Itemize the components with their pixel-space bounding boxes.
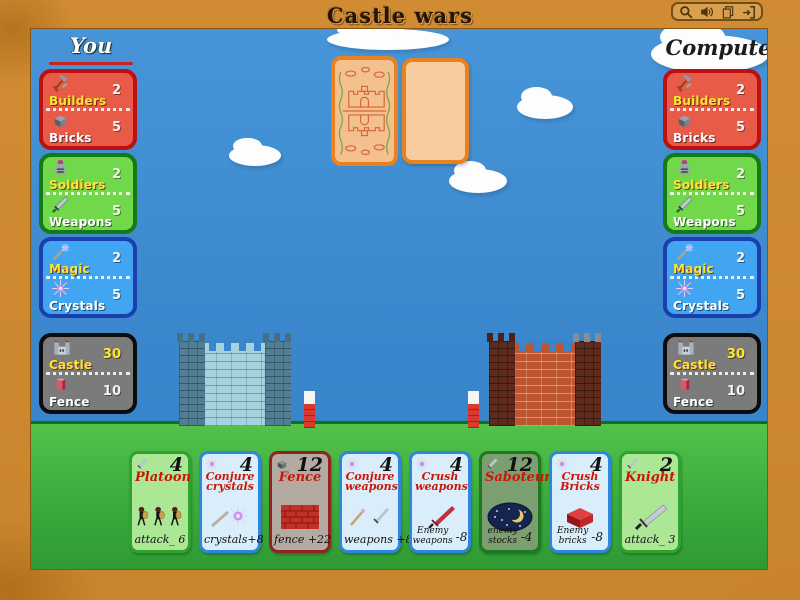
fence-brick-icon <box>675 375 694 394</box>
hand-card-knight[interactable]: 2 Knight attack_ 3 <box>619 451 681 553</box>
volume-icon[interactable] <box>700 5 714 19</box>
fence-value: 10 <box>727 384 745 399</box>
hand-card-fence[interactable]: 12 Fence fence +22 <box>269 451 331 553</box>
computer-castle-panel: Castle 30 Fence 10 <box>663 333 761 414</box>
magic-value: 2 <box>112 251 121 266</box>
crystal-icon <box>345 457 359 471</box>
hand-card-crush-weapons[interactable]: 4 Crush weapons Enemyweapons -8 <box>409 451 471 553</box>
brick-wall-art <box>272 500 328 534</box>
playfield: You Computer Builders 2 Bricks 5 <box>30 28 768 570</box>
crystals-value: 5 <box>112 288 121 303</box>
builders-value: 2 <box>736 83 745 98</box>
you-underline <box>49 62 133 65</box>
toolbar <box>671 2 763 21</box>
wand-icon <box>51 243 70 262</box>
crystals-label: Crystals <box>49 299 105 313</box>
computer-fence <box>468 391 479 428</box>
brick-icon <box>51 111 70 130</box>
soldiers-label: Soldiers <box>49 178 106 192</box>
brick-icon <box>675 111 694 130</box>
crystal-icon <box>205 457 219 471</box>
card-cost: 4 <box>240 454 253 476</box>
card-effect: fence +22 <box>274 533 326 546</box>
sword-icon <box>675 195 694 214</box>
you-soldiers-panel: Soldiers 2 Weapons 5 <box>39 153 137 234</box>
you-magic-panel: Magic 2 Crystals 5 <box>39 237 137 318</box>
card-effect: attack_ 3 <box>624 533 676 546</box>
soldiers-value: 2 <box>736 167 745 182</box>
card-effect: Enemyweapons -8 <box>414 527 466 546</box>
castle-value: 30 <box>103 347 121 362</box>
sword-icon <box>485 457 499 471</box>
weapons-value: 5 <box>736 204 745 219</box>
bricks-value: 5 <box>112 120 121 135</box>
crystal-icon <box>555 457 569 471</box>
platoon-soldiers-art <box>132 500 188 534</box>
card-cost: 4 <box>590 454 603 476</box>
cloud <box>229 145 281 166</box>
weapons-value: 5 <box>112 204 121 219</box>
builders-label: Builders <box>49 94 106 108</box>
fence-value: 10 <box>103 384 121 399</box>
you-label: You <box>41 33 141 58</box>
you-builders-panel: Builders 2 Bricks 5 <box>39 69 137 150</box>
hand-card-conjure-weapons[interactable]: 4 Conjure weapons weapons +8 <box>339 451 401 553</box>
card-effect: attack_ 6 <box>134 533 186 546</box>
weapons-label: Weapons <box>673 215 736 229</box>
helmet-icon <box>51 159 70 178</box>
castle-label: Castle <box>49 358 92 372</box>
cloud <box>517 95 573 119</box>
card-effect: weapons +8 <box>344 533 396 546</box>
helmet-icon <box>675 159 694 178</box>
castle-label: Castle <box>673 358 716 372</box>
builders-value: 2 <box>112 83 121 98</box>
computer-soldiers-panel: Soldiers 2 Weapons 5 <box>663 153 761 234</box>
soldiers-value: 2 <box>112 167 121 182</box>
card-effect: enemystocks -4 <box>484 527 536 546</box>
wand-sword-art <box>342 500 398 534</box>
bricks-value: 5 <box>736 120 745 135</box>
builders-icon <box>51 75 70 94</box>
crystals-value: 5 <box>736 288 745 303</box>
hand-card-crush-bricks[interactable]: 4 Crush Bricks Enemybricks -8 <box>549 451 611 553</box>
search-icon[interactable] <box>679 5 693 19</box>
pages-icon[interactable] <box>721 5 735 19</box>
sword-icon <box>135 457 149 471</box>
magic-value: 2 <box>736 251 745 266</box>
card-back-pattern <box>335 60 394 162</box>
card-effect: crystals+8 <box>204 533 256 546</box>
crystal-icon <box>415 457 429 471</box>
computer-magic-panel: Magic 2 Crystals 5 <box>663 237 761 318</box>
fence-brick-icon <box>51 375 70 394</box>
builders-label: Builders <box>673 94 730 108</box>
card-cost: 4 <box>170 454 183 476</box>
castle-value: 30 <box>727 347 745 362</box>
bricks-label: Bricks <box>49 131 92 145</box>
card-cost: 4 <box>450 454 463 476</box>
hand-card-saboteur[interactable]: 12 Saboteur enemystocks -4 <box>479 451 541 553</box>
bricks-label: Bricks <box>673 131 716 145</box>
weapons-label: Weapons <box>49 215 112 229</box>
fence-label: Fence <box>673 395 714 409</box>
draw-pile-card-back[interactable] <box>331 56 398 166</box>
soldiers-label: Soldiers <box>673 178 730 192</box>
wand-crystal-art <box>202 500 258 534</box>
card-effect: Enemybricks -8 <box>554 527 606 546</box>
card-cost: 2 <box>660 454 673 476</box>
computer-builders-panel: Builders 2 Bricks 5 <box>663 69 761 150</box>
cloud <box>327 29 449 50</box>
your-fence <box>304 391 315 428</box>
crystal-icon <box>675 279 694 298</box>
crystal-icon <box>51 279 70 298</box>
crystals-label: Crystals <box>673 299 729 313</box>
cloud <box>449 169 507 193</box>
brick-icon <box>275 457 289 471</box>
discard-pile[interactable] <box>402 58 469 164</box>
builders-icon <box>675 75 694 94</box>
fence-label: Fence <box>49 395 90 409</box>
magic-label: Magic <box>49 262 90 276</box>
hand-card-conjure-crystals[interactable]: 4 Conjure crystals crystals+8 <box>199 451 261 553</box>
card-cost: 4 <box>380 454 393 476</box>
castle-icon <box>51 339 73 358</box>
castle-wars-game: { "title": "Castle wars", "toolbar": { "… <box>0 0 800 600</box>
magic-label: Magic <box>673 262 714 276</box>
you-castle-panel: Castle 30 Fence 10 <box>39 333 137 414</box>
exit-icon[interactable] <box>742 5 756 19</box>
hand-card-platoon[interactable]: 4 Platoon attac <box>129 451 191 553</box>
computer-label: Computer <box>649 35 768 60</box>
sword-art <box>622 500 678 534</box>
sword-icon <box>625 457 639 471</box>
castle-icon <box>675 339 697 358</box>
card-cost: 12 <box>507 454 533 476</box>
card-cost: 12 <box>297 454 323 476</box>
wand-icon <box>675 243 694 262</box>
sword-icon <box>51 195 70 214</box>
